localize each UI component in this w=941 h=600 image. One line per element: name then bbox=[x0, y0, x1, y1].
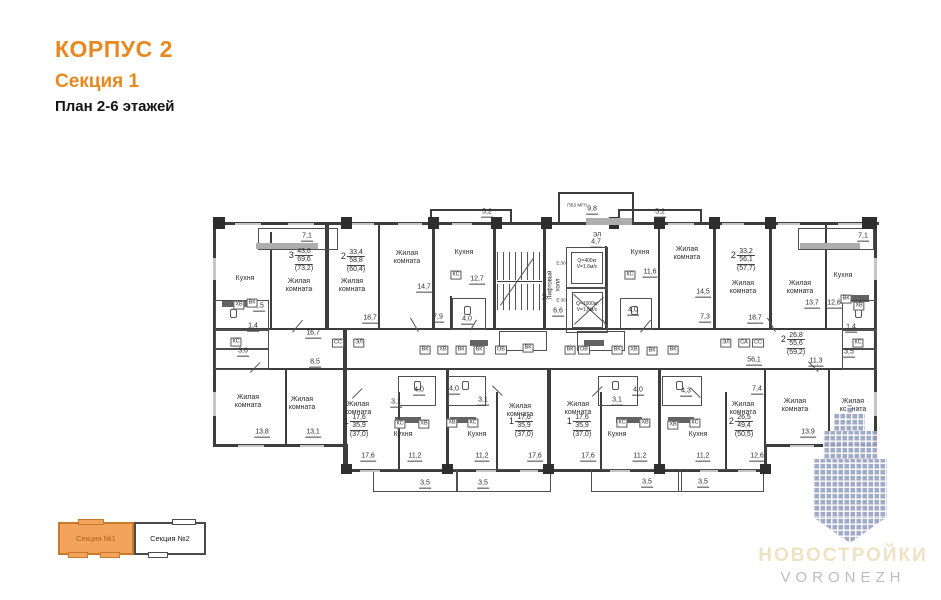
utility-riser-tag: ХВ bbox=[437, 346, 448, 355]
wall bbox=[510, 209, 512, 223]
room-label: Кухня bbox=[834, 272, 853, 280]
utility-riser-tag: КС bbox=[616, 419, 627, 428]
utility-riser-tag: ВК bbox=[647, 347, 658, 356]
room-area-value: 4,3 bbox=[680, 388, 692, 397]
room-area-value: 14,5 bbox=[695, 289, 711, 298]
utility-riser-tag: ХВ bbox=[853, 302, 864, 311]
logo-title: НОВОСТРОЙКИ bbox=[757, 545, 929, 567]
room-area-value: 4,0 bbox=[448, 386, 460, 395]
apartment-area-label: 226,855,6(59,2) bbox=[781, 332, 805, 356]
utility-riser-tag: ХВ bbox=[446, 419, 457, 428]
utility-riser-tag: ВК bbox=[565, 346, 576, 355]
room-label: Кухня bbox=[468, 431, 487, 439]
apartment-area-label: 117,635,9(37,0) bbox=[567, 414, 591, 438]
wall bbox=[700, 209, 702, 223]
room-area-value: 3,1 bbox=[611, 397, 623, 406]
legend-section-1-label: Секция №1 bbox=[76, 534, 116, 543]
window bbox=[452, 223, 472, 225]
utility-riser-tag: ВК bbox=[841, 295, 852, 304]
utility-riser-tag: КС bbox=[450, 271, 461, 280]
sanitary-fixture-icon bbox=[230, 309, 237, 318]
room-area-value: 6,6 bbox=[552, 308, 564, 317]
legend-shape-notch bbox=[78, 519, 104, 525]
room-area-value: 13,8 bbox=[254, 429, 270, 438]
room-area-value: 5,2 bbox=[481, 209, 493, 218]
vertical-label: ЭЛ bbox=[543, 293, 550, 300]
annotation: Е:30 bbox=[556, 260, 565, 265]
room-area-value: 12,6 bbox=[826, 300, 842, 309]
window bbox=[300, 445, 324, 447]
utility-riser-tag: СА bbox=[738, 339, 750, 348]
room-area-value: 16,7 bbox=[305, 330, 321, 339]
utility-riser-tag: КС bbox=[689, 419, 700, 428]
wall bbox=[558, 192, 560, 222]
utility-riser-tag: СС bbox=[752, 339, 764, 348]
utility-riser-tag: КС bbox=[394, 420, 405, 429]
utility-riser-tag: ВК bbox=[247, 299, 258, 308]
pylon bbox=[654, 464, 665, 474]
wall bbox=[769, 225, 772, 330]
wall bbox=[493, 225, 496, 330]
utility-riser-tag: ОВ bbox=[578, 346, 590, 355]
room-label: Жилая комната bbox=[674, 246, 700, 262]
utility-riser-tag: ВК bbox=[456, 346, 467, 355]
wall bbox=[213, 368, 877, 370]
room-area-value: 3,6 bbox=[237, 348, 249, 357]
room-area-value: 14,7 bbox=[416, 284, 432, 293]
room-area-value: 13,1 bbox=[305, 429, 321, 438]
balcony-rail bbox=[800, 243, 860, 249]
utility-riser-tag: ХВ bbox=[628, 346, 639, 355]
legend-shape-notch bbox=[148, 552, 168, 558]
wall bbox=[213, 444, 347, 447]
room-label: Жилая комната bbox=[286, 278, 312, 294]
utility-riser-tag: КС bbox=[624, 271, 635, 280]
utility-riser-tag: ВК bbox=[668, 346, 679, 355]
room-area-value: 11,6 bbox=[642, 269, 657, 278]
wall bbox=[378, 225, 380, 330]
wall bbox=[285, 368, 287, 446]
pylon bbox=[213, 217, 225, 229]
pylon bbox=[543, 464, 554, 474]
window bbox=[288, 223, 314, 225]
room-area-value: 1,4 bbox=[845, 324, 857, 333]
section-title: Секция 1 bbox=[55, 71, 175, 93]
pylon bbox=[442, 464, 453, 474]
room-area-value: 56,1 bbox=[746, 357, 762, 366]
room-area-value: 18,7 bbox=[747, 315, 763, 324]
sanitary-fixture-icon bbox=[462, 381, 469, 390]
annotation: Q=400кг V=1,6м/с bbox=[577, 258, 598, 270]
room-area-value: 3,1 bbox=[477, 397, 489, 406]
annotation: ПБЗ МГН bbox=[567, 202, 587, 207]
pylon bbox=[709, 217, 720, 229]
pylon bbox=[760, 464, 771, 474]
utility-riser-tag: КС bbox=[852, 339, 863, 348]
pylon bbox=[765, 217, 776, 229]
pylon bbox=[491, 217, 502, 229]
room-area-value: 8,5 bbox=[309, 359, 321, 368]
room-label: Кухня bbox=[236, 275, 255, 283]
window bbox=[778, 223, 800, 225]
wall bbox=[543, 225, 546, 330]
plan-level-title: План 2-6 этажей bbox=[55, 98, 175, 115]
room-area-value: 4,7 bbox=[590, 239, 602, 248]
utility-riser-tag: ЭЛ bbox=[720, 339, 731, 348]
pylon bbox=[341, 217, 352, 229]
legend-shape-notch bbox=[68, 552, 88, 558]
room-area-value: 13,7 bbox=[804, 300, 820, 309]
window bbox=[476, 470, 496, 472]
room-label: Жилая комната bbox=[289, 396, 315, 412]
room-label: Кухня bbox=[689, 431, 708, 439]
utility-riser-tag: КС bbox=[467, 419, 478, 428]
window bbox=[738, 470, 756, 472]
window bbox=[790, 445, 814, 447]
apartment-area-label: 226,549,4(50,5) bbox=[729, 414, 753, 438]
wall bbox=[764, 368, 766, 446]
sanitary-fixture-icon bbox=[612, 381, 619, 390]
wall bbox=[658, 368, 661, 470]
legend-section-2[interactable]: Секция №2 bbox=[134, 522, 206, 555]
wall bbox=[547, 368, 551, 470]
room-label: Жилая комната bbox=[339, 278, 365, 294]
window bbox=[874, 258, 877, 280]
window bbox=[610, 470, 630, 472]
utility-riser-tag: ХВ bbox=[233, 301, 244, 310]
room-area-value: 3,5 bbox=[843, 349, 855, 358]
sanitary-fixture-icon bbox=[464, 306, 471, 315]
room-label: Кухня bbox=[455, 249, 474, 257]
apartment-area-label: 343,669,6(73,2) bbox=[289, 248, 313, 272]
room-area-value: 9,8 bbox=[586, 206, 598, 215]
window bbox=[398, 223, 422, 225]
pylon bbox=[862, 217, 877, 229]
apartment-area-label: 233,458,8(60,4) bbox=[341, 249, 365, 273]
legend-shape-notch bbox=[100, 552, 120, 558]
logo-subtitle: VORONEZH bbox=[757, 569, 929, 586]
window bbox=[235, 223, 261, 225]
room-area-value: 17,6 bbox=[527, 453, 543, 462]
pylon bbox=[654, 217, 665, 229]
utility-riser-tag: ЭЛ bbox=[353, 339, 364, 348]
vertical-label: Лифтовый холл bbox=[548, 271, 563, 300]
wall-outline bbox=[678, 469, 764, 492]
room-area-value: 12,7 bbox=[469, 276, 485, 285]
window bbox=[360, 470, 380, 472]
room-area-value: 7,1 bbox=[857, 233, 869, 242]
utility-riser-tag: ХВ bbox=[639, 419, 650, 428]
wall bbox=[632, 192, 634, 222]
utility-riser-tag: КС bbox=[230, 338, 241, 347]
window bbox=[238, 445, 264, 447]
room-area-value: 13,9 bbox=[800, 429, 816, 438]
wall bbox=[430, 209, 512, 211]
room-area-value: 4,0 bbox=[413, 387, 425, 396]
room-area-value: 7,1 bbox=[301, 233, 313, 242]
room-label: Жилая комната bbox=[787, 280, 813, 296]
floor-plan-page: КОРПУС 2 Секция 1 План 2-6 этажей КухняЖ… bbox=[0, 0, 941, 600]
room-area-value: 7,3 bbox=[699, 314, 711, 323]
room-label: Жилая комната bbox=[235, 394, 261, 410]
window bbox=[874, 392, 877, 416]
apartment-area-label: 117,635,9(37,0) bbox=[344, 414, 368, 438]
wall-outline bbox=[591, 469, 682, 492]
room-area-value: 3,1 bbox=[390, 399, 402, 408]
utility-riser-tag: ВК bbox=[612, 346, 623, 355]
utility-riser-tag: ХВ bbox=[667, 421, 678, 430]
utility-riser-tag: ХВ bbox=[418, 420, 429, 429]
utility-riser-tag: ОВ bbox=[495, 346, 507, 355]
legend-section-2-label: Секция №2 bbox=[150, 534, 190, 543]
wall bbox=[343, 328, 347, 470]
room-area-value: 11,2 bbox=[407, 453, 422, 462]
room-label: Жилая комната bbox=[782, 398, 808, 414]
door-swing bbox=[292, 320, 303, 333]
window bbox=[838, 223, 862, 225]
room-area-value: 3,5 bbox=[641, 479, 653, 488]
utility-riser-tag: ВК bbox=[420, 346, 431, 355]
room-area-value: 11,2 bbox=[632, 453, 647, 462]
wall bbox=[725, 392, 727, 470]
room-label: Кухня bbox=[631, 249, 650, 257]
window bbox=[700, 470, 718, 472]
room-area-value: 11,2 bbox=[695, 453, 710, 462]
stairs bbox=[497, 252, 542, 280]
window bbox=[213, 258, 216, 280]
pylon bbox=[541, 217, 552, 229]
room-area-value: 5,2 bbox=[654, 209, 666, 218]
window bbox=[668, 223, 694, 225]
window bbox=[213, 392, 216, 416]
balcony-rail bbox=[586, 218, 632, 225]
legend-shape-notch bbox=[172, 519, 196, 525]
room-area-value: 4,0 bbox=[632, 387, 644, 396]
room-label: Кухня bbox=[394, 431, 413, 439]
annotation: ЭЛ bbox=[593, 232, 601, 239]
wall bbox=[658, 225, 660, 330]
wall bbox=[713, 225, 716, 330]
wall bbox=[558, 192, 634, 194]
pylon bbox=[428, 217, 439, 229]
room-area-value: 7,4 bbox=[751, 386, 763, 395]
utility-riser-tag: ВК bbox=[474, 346, 485, 355]
room-area-value: 3,5 bbox=[419, 480, 431, 489]
room-area-value: 11,3 bbox=[808, 358, 823, 367]
room-area-value: 7,9 bbox=[432, 314, 444, 323]
room-area-value: 17,6 bbox=[580, 453, 596, 462]
wall-outline bbox=[456, 469, 551, 492]
room-label: Жилая комната bbox=[730, 280, 756, 296]
room-area-value: 4,0 bbox=[461, 316, 473, 325]
room-area-value: 17,6 bbox=[360, 453, 376, 462]
utility-riser-tag: СС bbox=[332, 339, 344, 348]
room-area-value: 18,7 bbox=[362, 315, 378, 324]
wall bbox=[496, 392, 498, 470]
room-area-value: 12,6 bbox=[749, 453, 765, 462]
stair-landing bbox=[497, 281, 542, 282]
window bbox=[520, 470, 538, 472]
apartment-area-label: 233,256,1(57,7) bbox=[731, 248, 755, 272]
window bbox=[722, 223, 744, 225]
room-label: Жилая комната bbox=[394, 250, 420, 266]
room-area-value: 4,0 bbox=[627, 307, 639, 316]
stairs bbox=[497, 284, 542, 310]
door-swing bbox=[352, 388, 363, 399]
legend-section-1[interactable]: Секция №1 bbox=[58, 522, 134, 555]
apartment-area-label: 117,635,9(37,0) bbox=[509, 414, 533, 438]
room-area-value: 3,5 bbox=[697, 479, 709, 488]
pylon bbox=[341, 464, 352, 474]
utility-riser-tag: ВК bbox=[523, 344, 534, 353]
room-label: Кухня bbox=[608, 431, 627, 439]
room-area-value: 1,4 bbox=[247, 323, 259, 332]
room-area-value: 11,2 bbox=[474, 453, 489, 462]
annotation: Q=1000кг V=1,6м/с bbox=[576, 301, 598, 313]
room-label: Жилая комната bbox=[840, 398, 866, 414]
page-header: КОРПУС 2 Секция 1 План 2-6 этажей bbox=[55, 36, 175, 115]
room-area-value: 3,5 bbox=[477, 480, 489, 489]
building-title: КОРПУС 2 bbox=[55, 36, 175, 63]
window bbox=[352, 223, 374, 225]
